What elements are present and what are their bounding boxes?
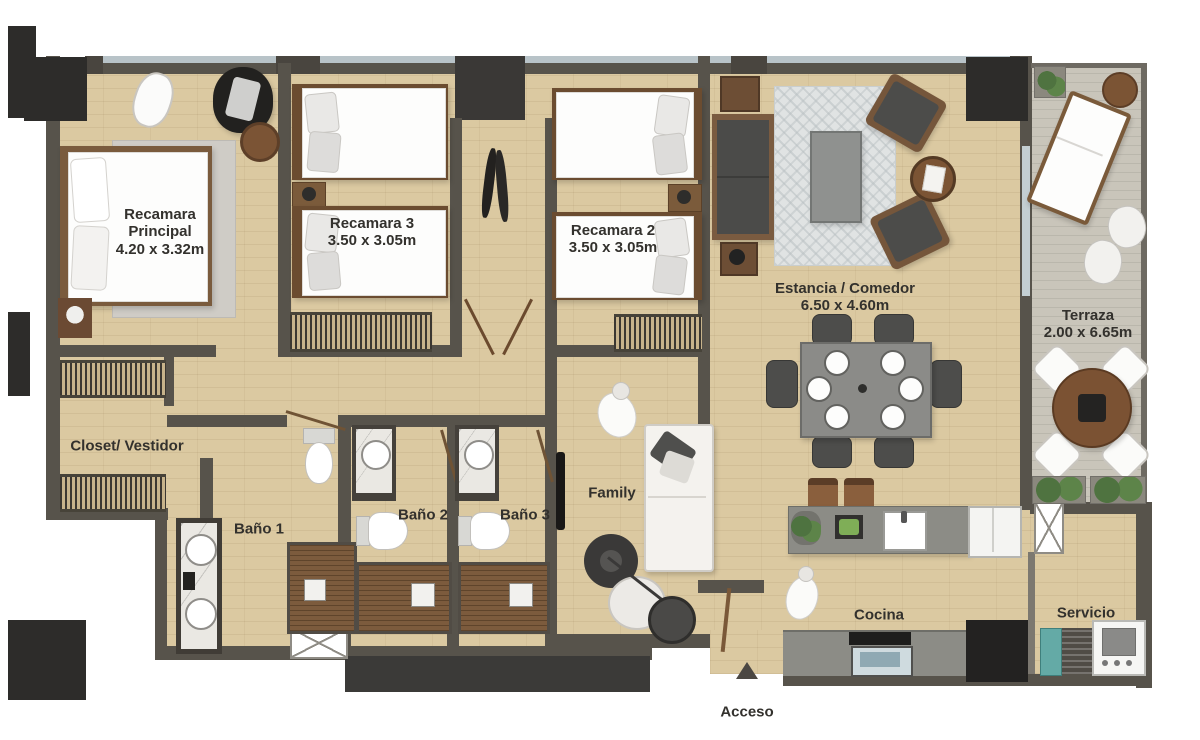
plate [880,404,906,430]
structure-block [8,312,30,396]
room-name: Family [588,484,636,501]
room-name: Recamara 2 [571,221,655,238]
ottoman [720,242,758,276]
plate [824,350,850,376]
structure-block [966,57,1028,121]
round-side-table [910,156,956,202]
round-side-table [240,122,280,162]
acceso-arrow [736,662,758,679]
label-bano1: Baño 1 [234,502,284,537]
closet-stub-wall [200,458,213,520]
label-terraza: Terraza 2.00 x 6.65m [1044,289,1132,359]
faucet [901,511,907,523]
pillow [652,132,689,176]
washer [1040,628,1062,676]
dryer-screen [1102,628,1136,656]
soap-tray [183,572,195,590]
cushion [225,76,262,122]
bed-single [552,88,702,180]
bed-single [292,84,448,180]
label-recamara3: Recamara 3 3.50 x 3.05m [328,197,416,267]
tv-wall-mounted [556,452,565,530]
corridor-left-wall [450,118,462,357]
planter-box [1090,476,1146,504]
coffee-table [810,131,862,223]
label-recamara2: Recamara 2 3.50 x 3.05m [569,204,657,274]
lamp [302,187,316,201]
bath-top-wall [167,415,287,427]
wardrobe-rack [60,360,166,398]
room-dims: 3.50 x 3.05m [569,239,657,257]
room-name: Baño 1 [234,520,284,537]
nightstand [292,182,326,208]
room-name: Closet/ Vestidor [70,437,183,454]
table-grill [1078,394,1106,422]
knob [1126,660,1132,666]
greens [839,519,859,535]
bath-left-wall [155,520,167,660]
shower-deck [458,562,550,634]
plate [880,350,906,376]
shower-deck [287,542,357,634]
floor-lamp-shade [648,596,696,644]
plant-box [58,298,92,338]
plant [791,511,821,545]
room-name: Recamara 3 [330,214,414,231]
porch-slab [345,656,650,692]
papers [922,164,946,193]
room-dims: 6.50 x 4.60m [775,297,915,315]
planter-box [1032,476,1086,504]
hamper [1062,628,1092,674]
shower-head [411,583,435,607]
left-wall [46,56,60,520]
terrace-round-table [1052,368,1132,448]
fridge-split [992,508,994,552]
cutting-board [835,515,863,539]
room-name: Recamara Principal [124,206,196,241]
closet-rack [614,314,702,352]
structure-block [8,620,86,700]
cushion-split [648,496,706,498]
sink [185,598,217,630]
pillow [304,91,340,134]
room-name: Acceso [720,703,773,720]
sink [361,440,391,470]
room-name: Baño 3 [500,506,550,523]
person-figure-head [798,566,814,582]
room-dims: 4.20 x 3.32m [116,241,204,259]
shaft-block [455,56,525,120]
room-name: Terraza [1062,306,1114,323]
label-estancia: Estancia / Comedor 6.50 x 4.60m [775,262,915,332]
dining-chair [812,436,852,468]
pillow [653,94,690,138]
closet-rack [290,312,432,352]
room-name: Baño 2 [398,506,448,523]
lamp [677,190,691,204]
label-servicio: Servicio [1057,586,1115,621]
wall-pillar [731,56,767,74]
terrace-right-rail [1141,63,1147,505]
dryer [1092,620,1146,676]
sofa [712,114,778,240]
pillow [652,254,688,296]
fridge [968,506,1022,558]
label-recamara-principal: Recamara Principal 4.20 x 3.32m [116,188,204,276]
knob [1114,660,1120,666]
tall-cabinet [966,620,1028,682]
kitchen-island [788,506,970,554]
plate [898,376,924,402]
servicio-terrace-door [1034,502,1064,554]
label-closet: Closet/ Vestidor [70,419,183,454]
cooktop [849,632,911,645]
wall-pillar [85,56,103,74]
dining-chair [930,360,962,408]
label-bano3: Baño 3 [500,488,550,523]
ottoman [720,76,760,112]
label-family: Family [588,466,636,501]
sink [464,440,494,470]
master-bottom-wall [46,345,216,357]
cocina-servicio-wall [1028,552,1035,674]
toilet-bowl [305,442,333,484]
dining-chair [766,360,798,408]
pillow [654,217,691,259]
nightstand [668,184,702,212]
dining-chair [874,436,914,468]
sink [185,534,217,566]
shower-head [304,579,326,601]
island-sink [883,511,927,551]
knob [1102,660,1108,666]
sliding-glass-door [1022,146,1030,296]
shower-deck [356,562,452,634]
oven-glass [860,652,900,667]
pillow [70,225,109,291]
lounger-split [1056,136,1103,157]
room-name: Estancia / Comedor [775,279,915,296]
room-dims: 2.00 x 6.65m [1044,324,1132,342]
structure-block [24,57,87,121]
plate [824,404,850,430]
family-sofa [644,424,714,572]
person-figure-head [612,382,630,400]
kitchen-counter [783,630,968,676]
room-name: Servicio [1057,604,1115,621]
decor [729,249,745,265]
room-name: Cocina [854,606,904,623]
pillow [306,131,341,174]
label-bano2: Baño 2 [398,488,448,523]
label-cocina: Cocina [854,588,904,623]
room-dims: 3.50 x 3.05m [328,232,416,250]
pillow [70,157,110,223]
cushion-split [717,176,769,178]
pouf-round [1102,72,1138,108]
floor-plan: Recamara Principal 4.20 x 3.32m Recamara… [0,0,1200,740]
shower-head [509,583,533,607]
plate [806,376,832,402]
table-center [858,384,867,393]
planter-box [1034,66,1066,98]
oven [851,646,913,677]
wardrobe-rack [60,474,166,512]
label-acceso: Acceso [720,685,773,720]
